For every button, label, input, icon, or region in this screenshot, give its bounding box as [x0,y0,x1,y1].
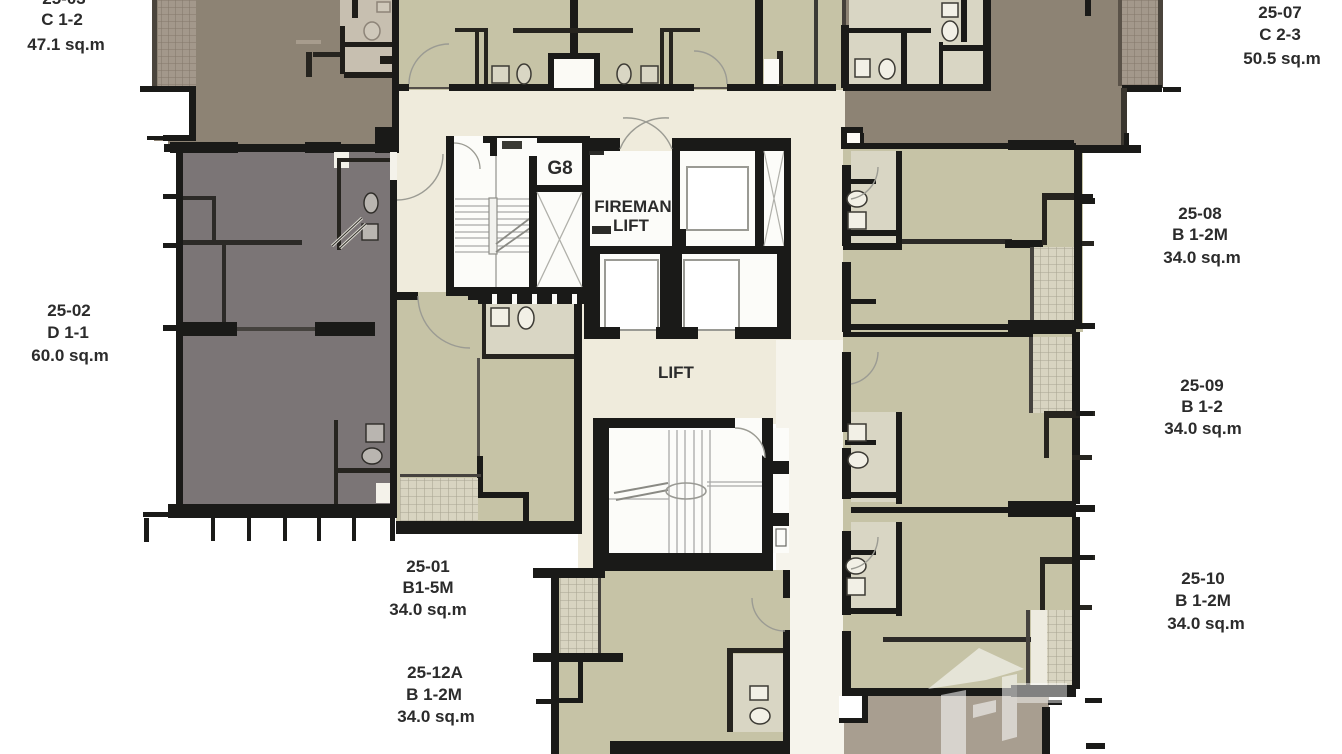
svg-text:25-09: 25-09 [1180,376,1223,395]
svg-text:B 1-2: B 1-2 [1181,397,1223,416]
svg-text:FIREMAN: FIREMAN [594,197,671,216]
svg-text:B 1-2M: B 1-2M [1175,591,1231,610]
svg-text:34.0 sq.m: 34.0 sq.m [397,707,475,726]
svg-text:25-12A: 25-12A [407,663,463,682]
svg-text:LIFT: LIFT [613,216,649,235]
svg-text:25-08: 25-08 [1178,204,1221,223]
svg-text:LIFT: LIFT [658,363,694,382]
svg-text:D 1-1: D 1-1 [47,323,89,342]
svg-text:25-01: 25-01 [406,557,449,576]
svg-text:34.0 sq.m: 34.0 sq.m [1167,614,1245,633]
svg-text:25-10: 25-10 [1181,569,1224,588]
svg-text:34.0 sq.m: 34.0 sq.m [1164,419,1242,438]
svg-text:G8: G8 [547,158,572,179]
svg-text:25-03: 25-03 [42,0,85,8]
svg-text:34.0 sq.m: 34.0 sq.m [1163,248,1241,267]
svg-text:B 1-2M: B 1-2M [1172,225,1228,244]
svg-text:25-02: 25-02 [47,301,90,320]
svg-text:34.0 sq.m: 34.0 sq.m [389,600,467,619]
svg-text:60.0 sq.m: 60.0 sq.m [31,346,109,365]
svg-text:C 2-3: C 2-3 [1259,25,1301,44]
svg-text:25-07: 25-07 [1258,3,1301,22]
svg-text:B1-5M: B1-5M [402,578,453,597]
svg-text:C 1-2: C 1-2 [41,10,83,29]
svg-text:50.5 sq.m: 50.5 sq.m [1243,49,1321,68]
svg-text:B 1-2M: B 1-2M [406,685,462,704]
svg-text:47.1 sq.m: 47.1 sq.m [27,35,105,54]
